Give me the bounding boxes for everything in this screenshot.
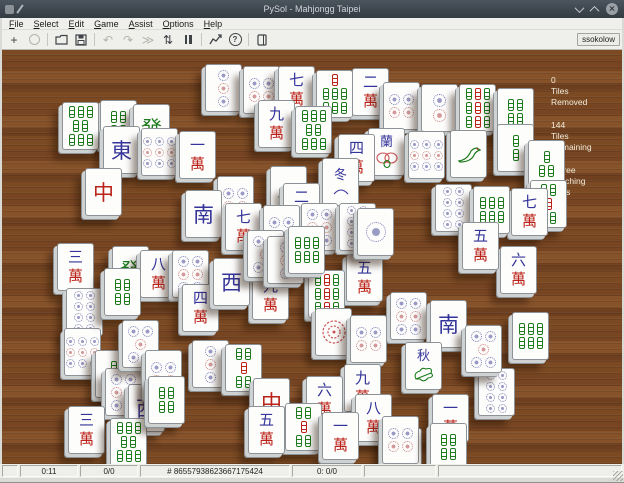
mahjong-tile[interactable] (450, 130, 487, 178)
menu-game[interactable]: Game (89, 19, 124, 29)
mahjong-tile[interactable] (512, 312, 549, 360)
toolbar-pause-button[interactable] (178, 31, 198, 48)
mahjong-tile[interactable]: 西 (213, 258, 250, 306)
mahjong-tile[interactable] (148, 376, 185, 424)
toolbar-autodrop-button[interactable]: ≫ (138, 31, 158, 48)
menu-edit[interactable]: Edit (64, 19, 90, 29)
mahjong-tile[interactable] (478, 368, 515, 416)
mahjong-tile[interactable] (357, 208, 394, 256)
mahjong-tile[interactable]: 東 (103, 126, 140, 174)
mahjong-tile[interactable] (465, 325, 502, 373)
mahjong-tile[interactable]: 七萬 (511, 188, 548, 236)
mahjong-tile[interactable]: 冬 (322, 158, 359, 206)
mahjong-tile[interactable] (459, 84, 496, 132)
mahjong-tile[interactable]: 五萬 (462, 222, 499, 270)
game-canvas[interactable]: 0 Tiles Removed144 Tiles Remaining4 Free… (2, 50, 622, 464)
mahjong-tile[interactable]: 一萬 (322, 412, 359, 460)
mahjong-tile[interactable] (285, 403, 322, 451)
toolbar-select-game-button[interactable] (24, 31, 44, 48)
user-chip[interactable]: ssokolow (577, 33, 620, 46)
toolbar-separator (248, 33, 249, 46)
status-moves: 0/0 (80, 465, 138, 477)
toolbar-undo-button[interactable]: ↶ (98, 31, 118, 48)
mahjong-tile[interactable] (383, 82, 420, 130)
mahjong-tile[interactable]: 三萬 (68, 406, 105, 454)
toolbar-statistics-button[interactable] (205, 31, 225, 48)
mahjong-tile[interactable]: 南 (430, 300, 467, 348)
mahjong-tile[interactable] (350, 315, 387, 363)
status-message (438, 465, 622, 477)
status-extra (364, 465, 436, 477)
toolbar-help-button[interactable]: ? (225, 31, 245, 48)
status-time: 0:11 (20, 465, 78, 477)
mahjong-tile[interactable]: 五萬 (346, 254, 383, 302)
mahjong-tile[interactable]: 南 (185, 190, 222, 238)
toolbar-new-game-button[interactable]: + (4, 31, 24, 48)
toolbar-separator (47, 33, 48, 46)
toolbar-rules-button[interactable] (252, 31, 272, 48)
statusbar: 0:110/0# 865579386236671754240: 0/0 (0, 464, 624, 478)
mahjong-tile[interactable] (408, 131, 445, 179)
minimize-icon[interactable] (575, 3, 585, 13)
mahjong-tile[interactable] (430, 423, 467, 464)
menu-assist[interactable]: Assist (124, 19, 158, 29)
resize-grip[interactable] (613, 471, 623, 481)
menu-file[interactable]: File (4, 19, 29, 29)
mahjong-tile[interactable] (104, 268, 141, 316)
mahjong-tile[interactable] (295, 106, 332, 154)
menu-select[interactable]: Select (29, 19, 64, 29)
mahjong-tile[interactable]: 秋 (405, 342, 442, 390)
maximize-icon[interactable] (590, 5, 600, 15)
mahjong-tile[interactable]: 中 (85, 168, 122, 216)
status-game-number: # 86557938623667175424 (140, 465, 290, 477)
toolbar-shuffle-button[interactable]: ⇅ (158, 31, 178, 48)
toolbar-redo-button[interactable]: ↷ (118, 31, 138, 48)
mahjong-tile[interactable]: 五萬 (248, 406, 285, 454)
app-icon (5, 5, 14, 14)
titlebar: PySol - Mahjongg Taipei (0, 0, 624, 18)
menu-options[interactable]: Options (158, 19, 199, 29)
toolbar: +↶↷≫⇅? (0, 30, 624, 50)
window-title: PySol - Mahjongg Taipei (0, 4, 624, 14)
mahjong-tile[interactable]: 三萬 (57, 243, 94, 291)
menubar: FileSelectEditGameAssistOptionsHelp (0, 18, 624, 30)
menu-help[interactable]: Help (199, 19, 228, 29)
mahjong-tile[interactable] (192, 340, 229, 388)
toolbar-save-button[interactable] (71, 31, 91, 48)
toolbar-open-button[interactable] (51, 31, 71, 48)
close-icon[interactable] (606, 3, 618, 15)
mahjong-tile[interactable] (288, 226, 325, 274)
mahjong-tile[interactable]: 九萬 (258, 100, 295, 148)
toolbar-separator (201, 33, 202, 46)
mahjong-tile[interactable] (110, 418, 147, 464)
stat-tiles-removed: 0 Tiles Removed (551, 75, 592, 108)
mahjong-tile[interactable] (62, 102, 99, 150)
mahjong-tile[interactable] (421, 84, 458, 132)
mahjong-tile[interactable] (205, 64, 242, 112)
pysol-window: PySol - Mahjongg Taipei FileSelectEditGa… (0, 0, 624, 483)
mahjong-tile[interactable]: 六萬 (500, 246, 537, 294)
status-spacer (2, 465, 18, 477)
status-stacks: 0: 0/0 (292, 465, 362, 477)
mahjong-tile[interactable] (382, 416, 419, 464)
toolbar-separator (94, 33, 95, 46)
mahjong-tile[interactable] (141, 128, 178, 176)
mahjong-tile[interactable] (390, 292, 427, 340)
window-frame-left (0, 18, 2, 482)
mahjong-tile[interactable]: 一萬 (179, 131, 216, 179)
mahjong-tile[interactable] (315, 308, 352, 356)
